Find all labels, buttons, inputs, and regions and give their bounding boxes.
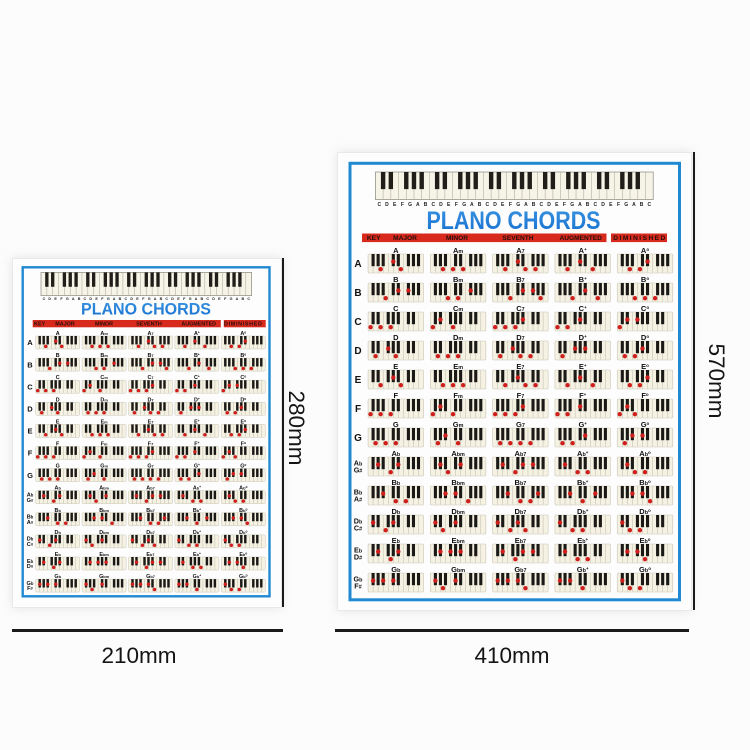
svg-text:A: A (354, 259, 361, 270)
svg-text:AUGMENTED: AUGMENTED (559, 235, 602, 242)
svg-text:C: C (27, 382, 33, 391)
svg-text:F: F (355, 404, 361, 415)
svg-text:G: G (27, 471, 33, 480)
svg-text:PLANO CHORDS: PLANO CHORDS (81, 300, 211, 319)
svg-text:MAJOR: MAJOR (55, 322, 75, 328)
svg-text:C: C (393, 304, 399, 313)
svg-text:G: G (354, 433, 362, 444)
svg-text:C: C (354, 317, 361, 328)
svg-text:KEY: KEY (34, 322, 45, 328)
svg-text:MAJOR: MAJOR (393, 235, 417, 242)
svg-text:D: D (212, 297, 215, 301)
svg-text:AUGMENTED: AUGMENTED (181, 322, 216, 328)
svg-text:E: E (355, 375, 362, 386)
svg-text:DIMINISHED: DIMINISHED (224, 322, 262, 328)
svg-text:MINOR: MINOR (446, 235, 468, 242)
svg-text:D: D (354, 346, 361, 357)
svg-text:A: A (27, 338, 33, 347)
svg-text:C: C (43, 297, 46, 301)
svg-text:G: G (66, 297, 69, 301)
svg-text:E: E (27, 427, 32, 436)
svg-text:DIMINISHED: DIMINISHED (613, 235, 665, 242)
svg-text:A: A (632, 202, 636, 208)
svg-text:E: E (393, 362, 398, 371)
svg-text:A: A (236, 297, 239, 301)
svg-text:D: D (385, 202, 389, 208)
svg-text:B: B (354, 288, 361, 299)
svg-text:A: A (416, 202, 420, 208)
svg-text:KEY: KEY (367, 235, 381, 242)
svg-text:C: C (648, 202, 652, 208)
svg-text:A: A (393, 246, 399, 255)
svg-text:A: A (72, 297, 75, 301)
svg-text:B: B (640, 202, 644, 208)
svg-text:G: G (624, 202, 628, 208)
svg-text:B: B (393, 275, 399, 284)
svg-text:SEVENTH: SEVENTH (136, 322, 162, 328)
svg-text:G: G (230, 297, 233, 301)
svg-text:B: B (241, 297, 244, 301)
svg-text:PLANO CHORDS: PLANO CHORDS (427, 207, 601, 235)
svg-text:F: F (28, 449, 33, 458)
svg-text:F: F (617, 202, 620, 208)
svg-text:D: D (27, 405, 33, 414)
svg-text:MINOR: MINOR (95, 322, 113, 328)
svg-text:B: B (27, 360, 33, 369)
svg-text:G: G (393, 420, 399, 429)
svg-text:G: G (408, 202, 412, 208)
svg-text:C: C (377, 202, 381, 208)
svg-text:D: D (601, 202, 605, 208)
svg-text:F: F (401, 202, 404, 208)
svg-text:C: C (247, 297, 250, 301)
svg-text:D: D (393, 333, 399, 342)
svg-text:F: F (394, 391, 399, 400)
svg-text:D: D (48, 297, 51, 301)
svg-text:SEVENTH: SEVENTH (502, 235, 533, 242)
